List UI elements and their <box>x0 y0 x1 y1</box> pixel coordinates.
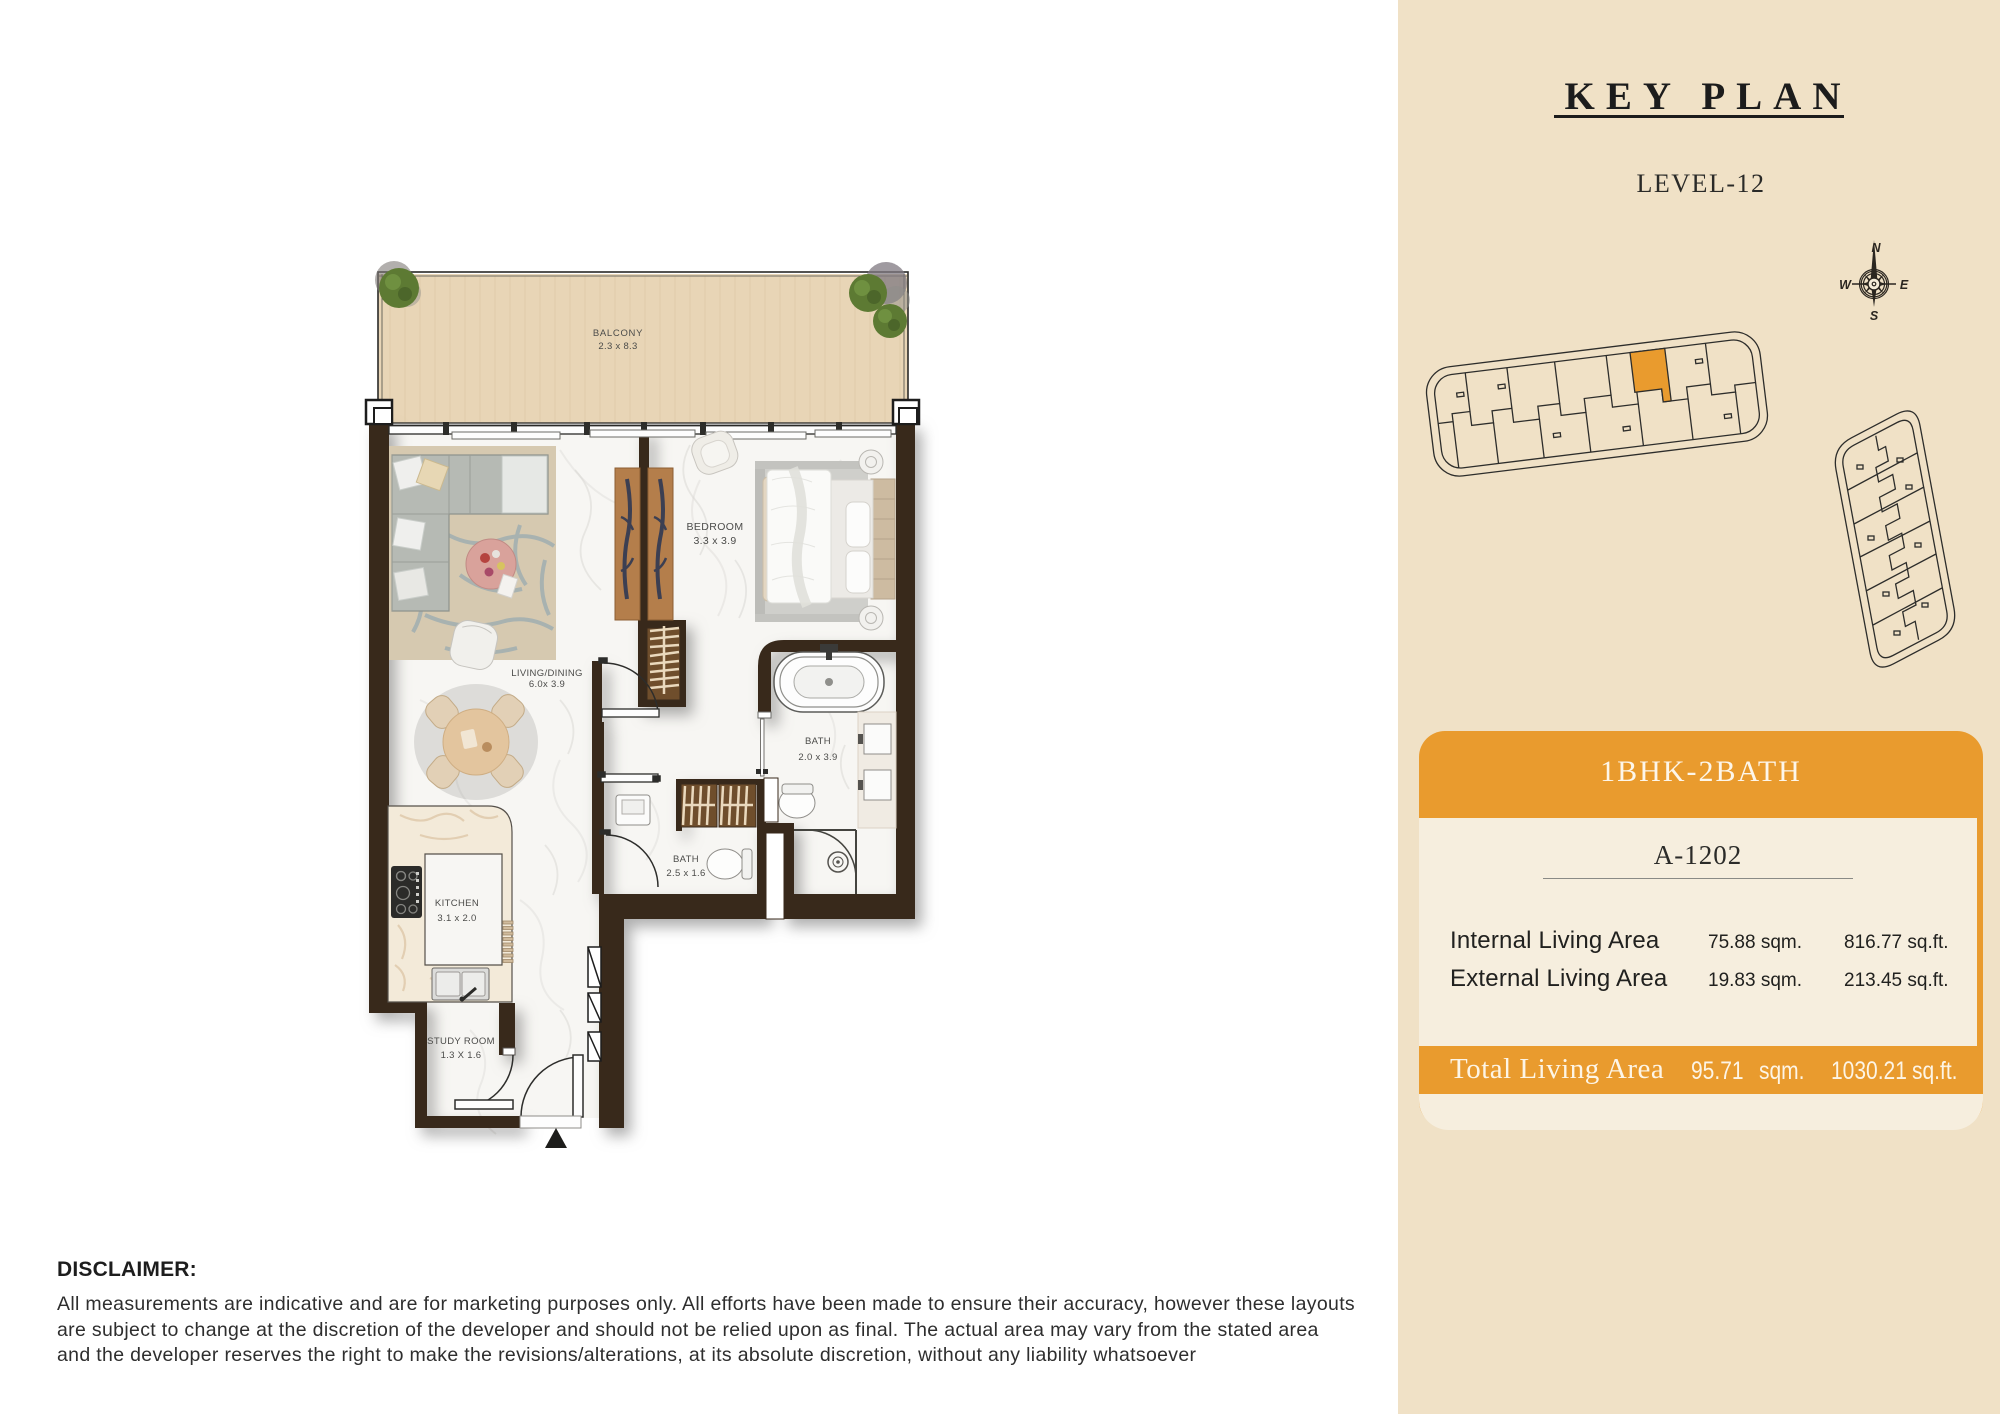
svg-text:S: S <box>1870 309 1879 323</box>
svg-text:2.3 x 8.3: 2.3 x 8.3 <box>598 341 637 352</box>
svg-text:1.3 X 1.6: 1.3 X 1.6 <box>441 1050 482 1061</box>
svg-text:BATH: BATH <box>805 736 831 747</box>
svg-text:BEDROOM: BEDROOM <box>686 521 743 533</box>
svg-text:KITCHEN: KITCHEN <box>435 898 479 909</box>
svg-text:E: E <box>1900 278 1909 292</box>
svg-text:LIVING/DINING: LIVING/DINING <box>511 668 583 679</box>
svg-text:BATH: BATH <box>673 854 699 865</box>
svg-text:2.0 x 3.9: 2.0 x 3.9 <box>798 752 837 763</box>
svg-text:W: W <box>1839 278 1852 292</box>
svg-text:3.1 x 2.0: 3.1 x 2.0 <box>437 913 476 924</box>
svg-text:BALCONY: BALCONY <box>593 328 643 339</box>
svg-text:6.0x 3.9: 6.0x 3.9 <box>529 679 565 690</box>
svg-text:3.3 x 3.9: 3.3 x 3.9 <box>694 535 737 547</box>
svg-text:STUDY ROOM: STUDY ROOM <box>427 1036 495 1047</box>
svg-text:N: N <box>1871 241 1881 255</box>
svg-text:2.5 x 1.6: 2.5 x 1.6 <box>666 868 705 879</box>
